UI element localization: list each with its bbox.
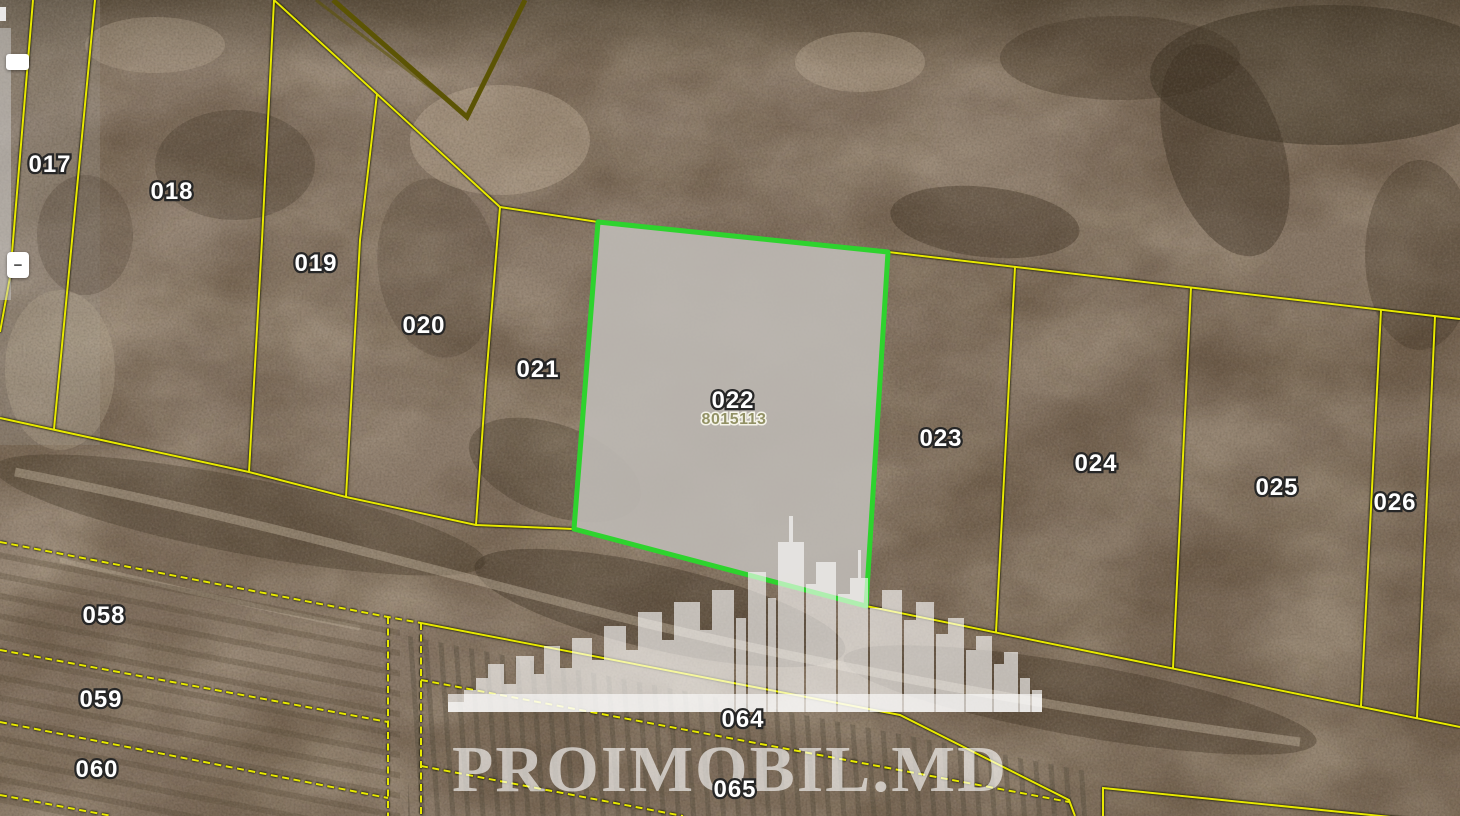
parcel-label-022: 022 — [711, 387, 754, 414]
parcel-label-026: 026 — [1373, 489, 1416, 516]
parcel-label-060: 060 — [75, 756, 118, 783]
parcel-label-064: 064 — [721, 706, 764, 733]
satellite-map: PROIMOBIL.MD 017018019020021022801511302… — [0, 0, 1460, 816]
parcel-label-025: 025 — [1255, 474, 1298, 501]
parcel-label-021: 021 — [516, 356, 559, 383]
map-canvas[interactable]: PROIMOBIL.MD 017018019020021022801511302… — [0, 0, 1460, 816]
parcel-sublabel-8015113: 8015113 — [702, 411, 767, 428]
parcel-label-059: 059 — [79, 686, 122, 713]
parcel-label-058: 058 — [82, 602, 125, 629]
parcel-label-065: 065 — [713, 776, 756, 803]
parcel-label-019: 019 — [294, 250, 337, 277]
zoom-in-button[interactable] — [6, 54, 29, 70]
parcel-label-023: 023 — [919, 425, 962, 452]
map-edge-chip — [0, 7, 6, 21]
parcel-label-020: 020 — [402, 312, 445, 339]
parcel-label-017: 017 — [28, 151, 71, 178]
zoom-out-button[interactable]: − — [7, 252, 29, 278]
parcel-label-024: 024 — [1074, 450, 1117, 477]
parcel-label-018: 018 — [150, 178, 193, 205]
